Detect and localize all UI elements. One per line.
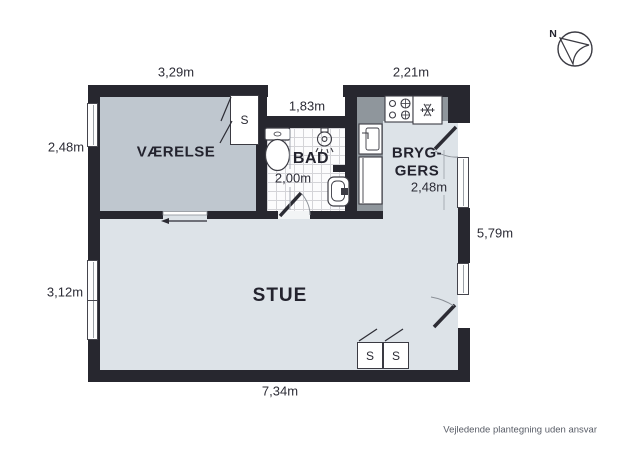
bad-shelf — [333, 165, 345, 172]
wall-bad-bryggers — [345, 97, 357, 219]
closet-stue-1-label: S — [366, 349, 374, 363]
wall-stue-c — [310, 211, 383, 219]
sliding-gap-floor — [163, 211, 207, 219]
room-label-bryggers-line2: GERS — [395, 163, 440, 180]
window-vaerelse-west — [87, 103, 98, 147]
room-label-bad: BAD — [293, 150, 329, 168]
window-stue-east — [457, 263, 469, 295]
floor-plan: S S S — [0, 0, 625, 460]
bad-door-gap-floor — [278, 211, 310, 219]
bryggers-counter-left — [357, 121, 383, 212]
bryggers-counter-top — [352, 97, 458, 121]
room-label-stue: STUE — [253, 285, 308, 307]
measure-bottom: 7,34m — [262, 384, 298, 399]
compass-north-label: N — [549, 28, 557, 40]
measure-right-side: 5,79m — [477, 226, 513, 241]
closet-stue-1: S — [357, 342, 383, 369]
wall-bad-top — [256, 116, 357, 128]
measure-bryggers-inner: 2,48m — [411, 180, 447, 195]
measure-stue-left: 3,12m — [47, 285, 83, 300]
wall-bottom — [88, 370, 470, 382]
wall-right-bottom — [458, 328, 470, 382]
measure-bad: 2,00m — [275, 171, 311, 186]
measure-vaerelse-top: 3,29m — [158, 65, 194, 80]
compass-icon — [558, 32, 592, 66]
measure-niche: 1,83m — [289, 99, 325, 114]
wall-right-mid — [458, 208, 470, 263]
disclaimer-text: Vejledende plantegning uden ansvar — [443, 425, 597, 436]
closet-stue-2: S — [383, 342, 409, 369]
measure-bryggers-top: 2,21m — [393, 65, 429, 80]
room-label-bryggers-line1: BRYG- — [392, 145, 442, 162]
closet-vaerelse: S — [230, 95, 259, 145]
room-label-vaerelse: VÆRELSE — [137, 144, 216, 161]
wall-right-top — [448, 85, 470, 123]
wall-stue-a — [88, 211, 163, 219]
closet-stue-2-label: S — [392, 349, 400, 363]
wall-stue-b — [207, 211, 278, 219]
measure-vaerelse-left: 2,48m — [48, 140, 84, 155]
window-stue-west — [87, 260, 98, 340]
closet-vaerelse-label: S — [240, 113, 248, 127]
window-bryggers-east — [457, 157, 469, 208]
